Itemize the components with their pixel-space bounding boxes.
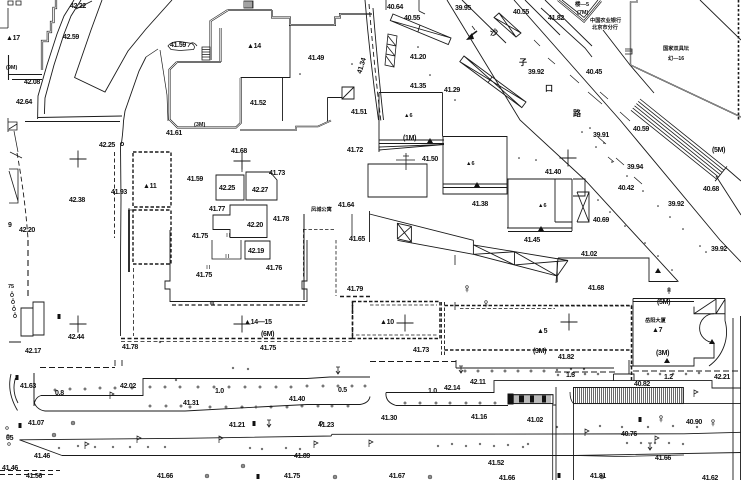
svg-text:沙: 沙	[490, 28, 498, 37]
svg-text:41.46: 41.46	[34, 453, 50, 460]
svg-text:75: 75	[8, 284, 14, 290]
svg-text:40.45: 40.45	[586, 69, 602, 76]
svg-text:41.31: 41.31	[183, 400, 199, 407]
svg-text:41.68: 41.68	[231, 148, 247, 155]
svg-text:41.62: 41.62	[702, 475, 718, 480]
svg-text:40.59: 40.59	[633, 126, 649, 133]
svg-text:1.2: 1.2	[664, 374, 673, 381]
svg-text:口: 口	[545, 84, 553, 93]
svg-text:(3M): (3M)	[656, 350, 669, 357]
svg-text:40.76: 40.76	[621, 431, 637, 438]
svg-text:41.49: 41.49	[308, 55, 324, 62]
svg-text:岳阳大厦: 岳阳大厦	[645, 316, 667, 324]
svg-text:40.69: 40.69	[593, 217, 609, 224]
svg-text:41.66: 41.66	[655, 455, 671, 462]
svg-text:42.27: 42.27	[252, 187, 268, 194]
svg-text:41.65: 41.65	[349, 236, 365, 243]
svg-text:41.50: 41.50	[422, 156, 438, 163]
svg-text:(6M): (6M)	[261, 331, 274, 338]
svg-text:41.52: 41.52	[488, 460, 504, 467]
svg-text:39.92: 39.92	[528, 69, 544, 76]
svg-text:41.20: 41.20	[410, 54, 426, 61]
svg-text:42.02: 42.02	[120, 383, 136, 390]
svg-text:▲6: ▲6	[404, 113, 413, 119]
svg-text:40.82: 40.82	[634, 381, 650, 388]
svg-text:▲6: ▲6	[466, 161, 475, 167]
svg-text:41.75: 41.75	[284, 473, 300, 480]
svg-text:9: 9	[8, 222, 12, 229]
svg-text:41.16: 41.16	[471, 414, 487, 421]
svg-text:41.45: 41.45	[524, 237, 540, 244]
svg-text:41.77: 41.77	[209, 206, 225, 213]
svg-text:▲11: ▲11	[143, 183, 157, 190]
svg-text:▲5: ▲5	[537, 328, 548, 335]
svg-text:41.64: 41.64	[338, 202, 354, 209]
svg-text:楼—5: 楼—5	[575, 0, 589, 8]
svg-text:41.56: 41.56	[26, 473, 42, 480]
svg-text:1.3: 1.3	[566, 372, 575, 379]
svg-text:42.20: 42.20	[19, 227, 35, 234]
svg-text:国家双具坛: 国家双具坛	[663, 44, 690, 52]
svg-text:41.02: 41.02	[581, 251, 597, 258]
svg-text:1.0: 1.0	[428, 388, 437, 395]
svg-text:41.78: 41.78	[273, 216, 289, 223]
svg-text:41.46: 41.46	[2, 465, 18, 472]
svg-text:(5M): (5M)	[657, 299, 670, 306]
svg-text:41.68: 41.68	[588, 285, 604, 292]
svg-text:39.94: 39.94	[627, 164, 643, 171]
svg-text:41.63: 41.63	[20, 383, 36, 390]
svg-text:41.78: 41.78	[122, 344, 138, 351]
svg-text:1.0: 1.0	[215, 388, 224, 395]
svg-text:42.25: 42.25	[219, 185, 235, 192]
svg-text:42.22: 42.22	[70, 3, 86, 10]
svg-text:(1M): (1M)	[403, 135, 416, 142]
svg-text:幻—16: 幻—16	[668, 54, 684, 62]
svg-text:42.38: 42.38	[69, 197, 85, 204]
svg-text:42.20: 42.20	[247, 222, 263, 229]
svg-text:40.55: 40.55	[513, 9, 529, 16]
svg-text:40.55: 40.55	[404, 15, 420, 22]
svg-text:41.52: 41.52	[250, 100, 266, 107]
svg-text:▲7: ▲7	[652, 327, 663, 334]
svg-text:0.8: 0.8	[55, 390, 64, 397]
svg-text:41.02: 41.02	[527, 417, 543, 424]
svg-text:39.92: 39.92	[711, 246, 727, 253]
svg-text:(9M): (9M)	[6, 65, 17, 71]
svg-text:39.92: 39.92	[668, 201, 684, 208]
svg-text:42.44: 42.44	[68, 334, 84, 341]
svg-text:41.93: 41.93	[111, 189, 127, 196]
svg-text:42.59: 42.59	[63, 34, 79, 41]
svg-text:▲14: ▲14	[247, 43, 261, 50]
svg-text:41.82: 41.82	[548, 15, 564, 22]
svg-text:(7M): (7M)	[577, 10, 588, 16]
svg-text:42.11: 42.11	[470, 379, 486, 386]
svg-text:0.5: 0.5	[338, 387, 347, 394]
svg-text:北京市分行: 北京市分行	[592, 23, 619, 31]
svg-text:41.21: 41.21	[229, 422, 245, 429]
svg-text:42.08: 42.08	[24, 79, 40, 86]
svg-text:(5M): (5M)	[712, 147, 725, 154]
svg-text:41.29: 41.29	[444, 87, 460, 94]
svg-text:▲10: ▲10	[380, 319, 394, 326]
svg-text:▲14—15: ▲14—15	[244, 319, 272, 326]
svg-text:41.59: 41.59	[187, 176, 203, 183]
svg-text:41.82: 41.82	[558, 354, 574, 361]
svg-text:42.64: 42.64	[16, 99, 32, 106]
svg-text:41.35: 41.35	[410, 83, 426, 90]
svg-text:41.76: 41.76	[266, 265, 282, 272]
svg-text:41.73: 41.73	[413, 347, 429, 354]
svg-text:40.42: 40.42	[618, 185, 634, 192]
svg-text:41.59: 41.59	[170, 42, 186, 49]
svg-text:41.40: 41.40	[545, 169, 561, 176]
svg-text:凤城公寓: 凤城公寓	[311, 205, 332, 213]
svg-text:42.25: 42.25	[99, 142, 115, 149]
svg-text:41.89: 41.89	[294, 453, 310, 460]
svg-text:41.72: 41.72	[347, 147, 363, 154]
svg-text:▲17: ▲17	[6, 35, 20, 42]
svg-text:39.95: 39.95	[455, 5, 471, 12]
svg-text:41.40: 41.40	[289, 396, 305, 403]
svg-text:▲6: ▲6	[538, 203, 547, 209]
svg-text:中国农业银行: 中国农业银行	[590, 16, 622, 24]
svg-text:41.51: 41.51	[351, 109, 367, 116]
svg-text:42.21: 42.21	[714, 374, 730, 381]
svg-text:39.91: 39.91	[593, 132, 609, 139]
svg-text:41.75: 41.75	[192, 233, 208, 240]
svg-text:42.14: 42.14	[444, 385, 460, 392]
svg-text:40.90: 40.90	[686, 419, 702, 426]
svg-text:40.68: 40.68	[703, 186, 719, 193]
svg-text:41.07: 41.07	[28, 420, 44, 427]
svg-text:42.17: 42.17	[25, 348, 41, 355]
svg-text:41.75: 41.75	[196, 272, 212, 279]
svg-text:41.61: 41.61	[166, 130, 182, 137]
svg-text:42.19: 42.19	[248, 248, 264, 255]
svg-text:41.30: 41.30	[381, 415, 397, 422]
svg-text:41.66: 41.66	[499, 475, 515, 480]
svg-text:41.81: 41.81	[590, 473, 606, 480]
svg-text:41.38: 41.38	[472, 201, 488, 208]
svg-text:41.75: 41.75	[260, 345, 276, 352]
svg-text:(3M): (3M)	[533, 348, 546, 355]
svg-text:41.66: 41.66	[157, 473, 173, 480]
svg-text:(3M): (3M)	[194, 122, 205, 128]
svg-text:子: 子	[519, 58, 527, 67]
svg-text:41.23: 41.23	[318, 422, 334, 429]
svg-text:路: 路	[573, 108, 582, 118]
svg-text:41.73: 41.73	[269, 170, 285, 177]
svg-text:40.64: 40.64	[387, 4, 403, 11]
svg-text:41.67: 41.67	[389, 473, 405, 480]
svg-text:05: 05	[6, 435, 14, 442]
svg-text:41.79: 41.79	[347, 286, 363, 293]
